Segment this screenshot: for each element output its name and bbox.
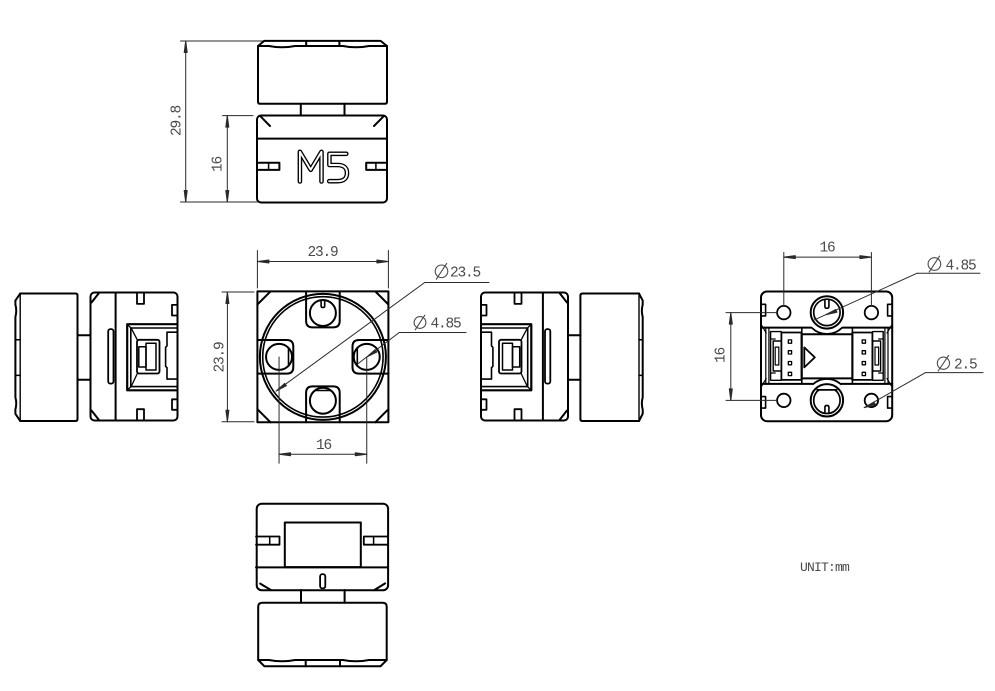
svg-text:UNIT:mm: UNIT:mm	[800, 560, 850, 575]
svg-text:16: 16	[316, 438, 332, 454]
svg-text:16: 16	[820, 241, 836, 257]
svg-text:4.85: 4.85	[431, 317, 462, 333]
svg-text:16: 16	[714, 347, 730, 363]
svg-text:29.8: 29.8	[170, 105, 186, 136]
svg-text:16: 16	[211, 156, 227, 172]
svg-text:23.9: 23.9	[213, 342, 229, 373]
svg-text:23.5: 23.5	[450, 266, 481, 282]
svg-text:2.5: 2.5	[954, 358, 977, 374]
svg-text:4.85: 4.85	[946, 258, 977, 274]
svg-text:23.9: 23.9	[308, 245, 339, 261]
